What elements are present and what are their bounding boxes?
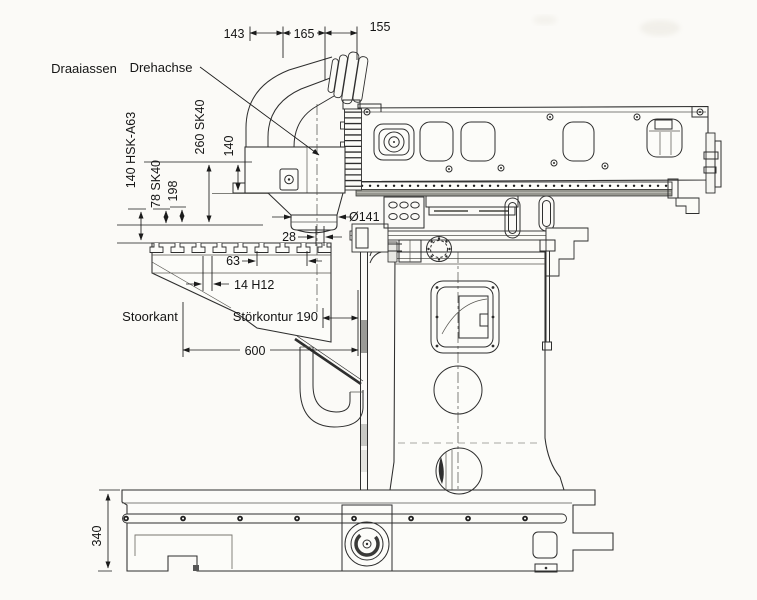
linear-rail [356,179,678,198]
dim-63-label: 63 [226,254,240,268]
dim-165-label: 165 [294,27,315,41]
machine-base [122,490,613,572]
dim-140hsk-label: 140 HSK-A63 [124,112,138,188]
dim-14h12-label: 14 H12 [234,278,274,292]
dim-600-label: 600 [245,344,266,358]
engineering-drawing: 143 165 155 260 SK40 140 140 HSK-A63 78 … [0,0,757,600]
dim-143-label: 143 [224,27,245,41]
drehachse-leader [200,67,319,155]
work-table [150,243,331,342]
base-rail [123,514,567,523]
dim-78sk40-label: 78 SK40 [149,160,163,208]
draaiassen-label: Draaiassen [51,61,117,76]
dim-155-label: 155 [370,20,391,34]
step-bracket [546,228,588,276]
cable-hose [300,347,363,427]
dim-340-label: 340 [90,526,104,547]
dim-140-label: 140 [222,136,236,157]
dim-198-label: 198 [166,181,180,202]
slot-bracket [539,196,554,231]
dim-28-label: 28 [282,230,296,244]
support-strut [295,336,363,384]
dim-141dia-label: Ø141 [349,210,380,224]
stoerkontur-label: Störkontur 190 [233,309,318,324]
end-bracket [676,198,699,214]
t-slots [150,243,331,253]
spindle-nose [268,193,343,233]
ram-end-plate [704,133,721,193]
drehachse-label: Drehachse [130,60,193,75]
table-apron [152,243,331,342]
dim-260sk40-label: 260 SK40 [193,100,207,155]
drawing-sheet: 143 165 155 260 SK40 140 140 HSK-A63 78 … [0,0,757,600]
stoorkant-label: Stoorkant [122,309,178,324]
column [388,242,564,494]
